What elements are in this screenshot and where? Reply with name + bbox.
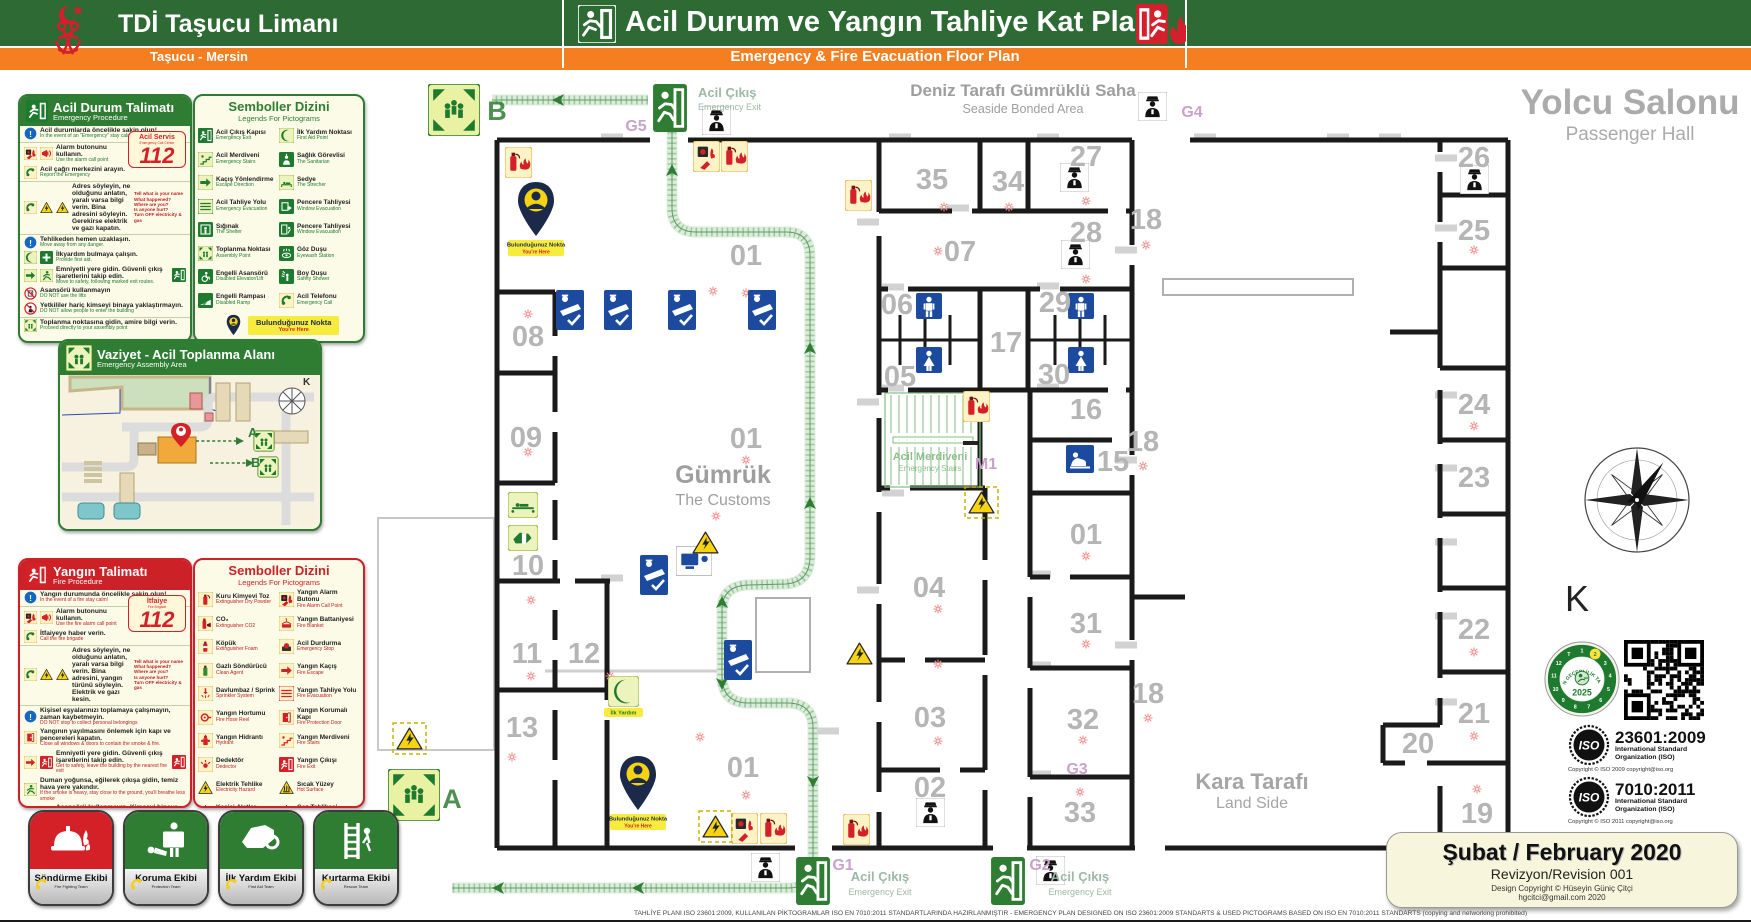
instruction-text: Asansörü kullanmayınDO NOT use the lifts [40, 287, 186, 300]
sticker-month: 1 [1581, 649, 1584, 655]
legend-columns: Acil Çıkış KapısıEmergency ExitAcil Merd… [195, 124, 363, 312]
legend-text: Elektrik TehlikeElectricity Hazard [216, 782, 279, 794]
legend-en: Disabled Ramp [216, 301, 279, 306]
detector-icon [1082, 275, 1091, 284]
detector-icon [1144, 714, 1153, 723]
legend-text: SedyeThe Strecher [297, 177, 360, 189]
desk-icon [668, 290, 696, 330]
alarmr-icon [279, 592, 294, 607]
room-number: 12 [568, 638, 600, 670]
instruction-text: Duman yoğunsa, eğilerek çıkışa gidin, te… [40, 777, 186, 802]
legend-text: Acil DurdurmaEmergency Stop [297, 641, 360, 653]
instruction-row: Kişisel eşyalarınızı toplamaya çalışmayı… [20, 706, 190, 728]
legend-text: Kesici AletlerCut Hazard [216, 805, 279, 808]
arrowr-icon [24, 756, 37, 769]
you-are-here-pin [518, 182, 554, 236]
legend-header: Semboller DiziniLegends For Pictograms [195, 96, 363, 124]
sticker-month: 9 [1562, 698, 1565, 704]
pin-icon [225, 314, 242, 336]
medic-icon [279, 152, 294, 167]
instruction-row: Adres söyleyin, ne olduğunu anlatın, yar… [20, 182, 190, 235]
legend-row: Yangın HidrantıHydrant [198, 729, 279, 753]
detector-icon [940, 203, 949, 212]
site-map: ABK [60, 375, 316, 525]
legend-text: Engelli RampasıDisabled Ramp [216, 294, 279, 306]
instruction-en: Proceed directly to your assembly point [40, 326, 186, 332]
legend-column: Acil Çıkış KapısıEmergency ExitAcil Merd… [198, 124, 279, 312]
area-label: Deniz Tarafı Gümrüklü Saha [910, 81, 1136, 100]
instruction-text: Emniyetli yere gidin. Güvenli çıkış işar… [56, 750, 169, 775]
panel-title: Yangın Talimatı [53, 565, 147, 578]
legend-row: İlk Yardım NoktasıFirst Aid Point [279, 124, 360, 148]
instruction-en: Use the alarm call point [56, 158, 130, 164]
legend-text: Engelli AsansörüDisabled Elevator/Lift [216, 271, 279, 283]
room-number: 35 [916, 164, 948, 196]
phone-icon [224, 877, 239, 892]
detector-icon [1005, 203, 1014, 212]
area-label: The Customs [675, 492, 770, 509]
legend-en: Dedector [216, 765, 279, 770]
legend-text: Toplanma NoktasıAssembly Point [216, 247, 279, 259]
instruction-en: Get to safety, leave the building by the… [56, 764, 169, 775]
area-label: Land Side [1216, 795, 1288, 812]
legend-en: Assembly Point [216, 254, 279, 259]
arrowg-icon [198, 175, 213, 190]
gate-label: G2 [1029, 857, 1050, 874]
ext-icon [760, 813, 787, 844]
legend-en: Sprinkler System [216, 694, 279, 699]
room-number: 34 [992, 166, 1024, 198]
area-label: Gümrük [675, 461, 771, 489]
design-copyright: Design Copyright © Hüseyin Güniç Çitçi [1387, 884, 1737, 893]
warn-icon [56, 668, 69, 681]
blanket-icon [279, 616, 294, 631]
room-number: 08 [512, 321, 544, 353]
svg-text:ISO: ISO [1579, 791, 1600, 805]
area-label: Kara Tarafı [1195, 769, 1308, 794]
legend-text: DedektörDedector [216, 758, 279, 770]
room-number: 01 [730, 423, 762, 455]
detector-icon [1082, 640, 1091, 649]
legend-en: Fire Escape [297, 671, 360, 676]
doorr-icon [24, 731, 37, 744]
legend-en: Window Evacuation [297, 230, 360, 235]
panel-title-wrap: Acil Durum TalimatıEmergency Procedure [53, 101, 174, 122]
detector-icon [1473, 785, 1482, 794]
hand-icon [238, 818, 284, 864]
window2-icon [279, 222, 294, 237]
instruction-text: Tehlikeden hemen uzaklaşın.Move away fro… [40, 236, 186, 249]
assembly-icon [198, 246, 213, 261]
desk-icon [640, 555, 668, 595]
tri-icon [847, 643, 872, 664]
wcwoman-icon [1068, 347, 1094, 373]
instruction-row: Duman yoğunsa, eğilerek çıkışa gidin, te… [20, 776, 190, 803]
legend-text: Yangın HortumuFire Hose Reel [216, 711, 279, 723]
standards-footnote: TAHLİYE PLANI ISO 23601:2009, KULLANILAN… [430, 910, 1731, 917]
shelter-icon [198, 222, 213, 237]
exitr-icon [40, 756, 53, 769]
instruction-text: Acil çağrı merkezini arayın.Report the E… [40, 166, 130, 179]
detector-icon [527, 672, 536, 681]
sticker-year: 2025 [1572, 688, 1592, 698]
iso-org: Organization (ISO) [1615, 754, 1706, 761]
team-rescue-team: Kurtarma EkibiRescue Team [313, 810, 399, 906]
instruction-en: Call the fire brigade [40, 637, 130, 643]
instruction-text: Yetkililer hariç kimseyi binaya yaklaştı… [40, 302, 186, 315]
instruction-text: Adres söyleyin, ne olduğunu anlatın, yar… [72, 647, 131, 703]
tri-icon [397, 728, 422, 749]
legend-text: Göz DuşuEyewash Station [297, 247, 360, 259]
room-number: 22 [1458, 614, 1490, 646]
legend-en: Fire Alarm Call Point [297, 604, 360, 609]
legend-en: Fire Evacuation [297, 694, 360, 699]
legend-text: Gaz TehlikesiGas Hazard [297, 805, 360, 808]
legend-row: Engelli RampasıDisabled Ramp [198, 289, 279, 313]
room-number: 10 [512, 550, 544, 582]
detector-icon [1082, 552, 1091, 561]
legend-text: Yangın MerdiveniFire Stairs [297, 735, 360, 747]
room-number: 25 [1458, 215, 1490, 247]
legend-en: Emergency Stop [297, 647, 360, 652]
gate-label: G3 [1066, 761, 1087, 778]
org-subtitle: Taşucu - Mersin [150, 49, 248, 64]
legend-row: Yangın HortumuFire Hose Reel [198, 706, 279, 730]
hydrant-icon [198, 733, 213, 748]
counter [1163, 279, 1353, 295]
wheel-icon [198, 269, 213, 284]
legend-tr: Gaz Tehlikesi [297, 805, 360, 808]
info-icon [24, 236, 37, 249]
room-number: 28 [1070, 217, 1102, 249]
alarmr-icon [24, 147, 37, 160]
instruction-row: Adres söyleyin, ne olduğunu anlatın, yar… [20, 646, 190, 706]
exitr-icon [279, 757, 294, 772]
aid-icon [40, 251, 53, 264]
legend-columns: Kuru Kimyevi TozExtinguisher Dry PowderC… [195, 588, 363, 808]
legend-row: Toplanma NoktasıAssembly Point [198, 242, 279, 266]
window-icon [279, 199, 294, 214]
desk-icon [748, 290, 776, 330]
officer-icon [751, 853, 780, 882]
instruction-en: Move away from any danger. [40, 243, 186, 249]
legend-text: CO₂Extinguisher CO2 [216, 617, 279, 629]
exterior-platform [378, 518, 494, 750]
room-number: 30 [1038, 359, 1070, 391]
detector-icon [1470, 422, 1479, 431]
map-north-letter: K [303, 377, 311, 388]
area-label: Acil Çıkış [1051, 869, 1110, 884]
legend-row: SığınakThe Shelter [198, 218, 279, 242]
badge-number: 112 [129, 145, 185, 166]
legend-row: Yangın MerdiveniFire Stairs [279, 729, 360, 753]
legend-text: SığınakThe Shelter [216, 224, 279, 236]
detector-icon [712, 512, 721, 521]
instruction-row: Yangının yayılmasını önlemek için kapı v… [20, 727, 190, 749]
panel-subtitle: Emergency Procedure [53, 114, 174, 122]
room-number: 27 [1070, 141, 1102, 173]
fire-exit-icon [1136, 4, 1186, 44]
fire-exit-icon [26, 564, 48, 586]
hand-icon [508, 525, 538, 551]
instruction-text: Adres söyleyin, ne olduğunu anlatın, yar… [72, 183, 131, 232]
panel-title: Acil Durum Talimatı [53, 101, 174, 114]
legend-en: Emergency Stairs [216, 160, 279, 165]
you-are-here-text-en: You're Here [522, 250, 550, 256]
instruction-en: Move to safety, following marked exit ro… [56, 280, 169, 286]
ext-icon [721, 141, 748, 172]
room-number: 29 [1039, 287, 1071, 319]
legend-tr: Kesici Aletler [216, 805, 279, 808]
helmet-icon [48, 818, 94, 864]
team-first-aid-team: İlk Yardım EkibiFirst Aid Team [218, 810, 304, 906]
svg-text:ISO: ISO [1579, 739, 1600, 753]
detector-icon [524, 310, 533, 319]
door-opening [857, 399, 879, 406]
team-label-strip: Kurtarma EkibiRescue Team [315, 869, 397, 906]
legend-row: Göz DuşuEyewash Station [279, 242, 360, 266]
legend-text: Sağlık GörevlisiThe Sanitarian [297, 153, 360, 165]
door-opening [1115, 642, 1137, 649]
doorr-icon [279, 710, 294, 725]
alarm-icon [731, 813, 758, 844]
north-letter: K [1565, 578, 1589, 620]
legend-text: Gazlı SöndürücüClean Agent [216, 664, 279, 676]
extclean-icon [198, 663, 213, 678]
map-marker-a: A [248, 425, 258, 440]
legend-text: Acil TelefonuEmergency Call [297, 294, 360, 306]
ext-icon [963, 391, 990, 422]
instruction-tr: Kişisel eşyalarınızı toplamaya çalışmayı… [40, 707, 186, 721]
detector-icon [934, 660, 943, 669]
legend-row: Pencere TahliyesiWindow Evacuation [279, 195, 360, 219]
hatchg-icon [198, 199, 213, 214]
legend-text: Yangın HidrantıHydrant [216, 735, 279, 747]
iso-copyright: Copyright © ISO 2011 copyright@iso.org [1568, 819, 1751, 825]
team-pictogram [125, 812, 207, 869]
sticker-month: 4 [1609, 674, 1612, 680]
room-number: 03 [914, 702, 946, 734]
assembly-icon [24, 319, 37, 332]
legend-row: KöpükExtinguisher Foam [198, 635, 279, 659]
legend-row: Davlumbaz / SprinkSprinkler System [198, 682, 279, 706]
legend-header: Semboller DiziniLegends For Pictograms [195, 560, 363, 588]
phone-icon [319, 877, 334, 892]
legend-row: Yangın BattaniyesiFire Blanket [279, 612, 360, 636]
crescent-icon [608, 676, 639, 707]
legend-panel-green: Semboller DiziniLegends For PictogramsAc… [193, 94, 365, 343]
detector-icon [934, 605, 943, 614]
instruction-en: If the smoke is heavy, stay close to the… [40, 791, 186, 802]
crescent-icon [279, 128, 294, 143]
emergency-number-badge: Acil ServisEmergency Call Center112 [128, 131, 186, 168]
room-number: 31 [1070, 608, 1102, 640]
legend-text: Boy DuşuSafety Shower [297, 271, 360, 283]
legend-text: Yangın KaçışFire Escape [297, 664, 360, 676]
legend-subtitle: Legends For Pictograms [195, 578, 363, 587]
door-opening [1435, 155, 1457, 162]
shower-icon [279, 269, 294, 284]
team-label-strip: Söndürme EkibiFire Fighting Team [30, 869, 112, 906]
instruction-text: İtfaiyeye haber verin.Call the fire brig… [40, 630, 130, 643]
room-number: 18 [1132, 678, 1164, 710]
legend-row: Sağlık GörevlisiThe Sanitarian [279, 148, 360, 172]
sticker-month: 6 [1599, 698, 1602, 704]
room-number: 06 [881, 289, 913, 321]
detector-icon [934, 247, 943, 256]
room-number: 18 [1127, 426, 1159, 458]
legend-en: Extinguisher CO2 [216, 624, 279, 629]
instruction-tr: Emniyetli yere gidin. Güvenli çıkış işar… [56, 750, 169, 764]
room-number: 11 [512, 638, 543, 670]
validity-sticker: 123456789101112TSON GEÇERLİLİK TARİH2025 [1543, 640, 1621, 718]
legend-row: Yangın KaçışFire Escape [279, 659, 360, 683]
you-are-here-en: You're Here [256, 327, 331, 333]
legend-en: Fire Hose Reel [216, 718, 279, 723]
area-label: Seaside Bonded Area [963, 102, 1084, 116]
qr-code [1624, 640, 1704, 720]
instruction-tr: Adres söyleyin, ne olduğunu anlatın, yar… [72, 183, 131, 232]
badge-number: 112 [129, 609, 185, 630]
legend-en: Disabled Elevator/Lift [216, 277, 279, 282]
room-number: 01 [730, 240, 762, 272]
team-label-strip: Koruma EkibiProtection Team [125, 869, 207, 906]
evacuation-plan-poster: ! İlk YardımBulunduğunuz NoktaYou're Her… [0, 0, 1751, 922]
legend-en: Window Evacuation [297, 207, 360, 212]
legend-tr: Yangın Alarm Butonu [297, 590, 360, 604]
legend-text: Yangın Tahliye YoluFire Evacuation [297, 688, 360, 700]
door-opening [1115, 247, 1137, 254]
org-title: TDİ Taşucu Limanı [118, 10, 338, 39]
legend-text: Kaçış YönlendirmeEscape Direction [216, 177, 279, 189]
detector-icon [1470, 732, 1479, 741]
legend-row: Gaz TehlikesiGas Hazard [279, 800, 360, 809]
room-number: 17 [990, 327, 1022, 359]
info-icon [24, 127, 37, 140]
runnerg-icon [40, 269, 53, 282]
legend-text: Pencere TahliyesiWindow Evacuation [297, 224, 360, 236]
ext-icon [845, 180, 872, 211]
room-number: 33 [1064, 797, 1096, 829]
room-number: 21 [1458, 698, 1490, 730]
revision-box: Şubat / February 2020 Revizyon/Revision … [1386, 832, 1738, 908]
legend-row: Boy DuşuSafety Shower [279, 265, 360, 289]
runnerg-icon [24, 783, 37, 796]
legend-row: Acil MerdiveniEmergency Stairs [198, 148, 279, 172]
wcman-icon [916, 293, 942, 319]
legend-text: Kuru Kimyevi TozExtinguisher Dry Powder [216, 594, 279, 606]
tri-icon [703, 816, 728, 837]
legend-en: Extinguisher Dry Powder [216, 600, 279, 605]
you-are-here-pin [620, 756, 656, 810]
assembly-map-subtitle: Emergency Assembly Area [97, 361, 275, 369]
legend-en: Safety Shower [297, 277, 360, 282]
phone-icon [129, 877, 144, 892]
legend-row: Acil Tahliye YoluEmergency Evacuation [198, 195, 279, 219]
wcman-icon [1068, 293, 1094, 319]
noenter-icon [24, 302, 37, 315]
exit-icon [653, 84, 687, 132]
instruction-row: Emniyetli yere gidin. Güvenli çıkış işar… [20, 749, 190, 776]
legend-row: Gazlı SöndürücüClean Agent [198, 659, 279, 683]
legend-en: Emergency Call [297, 301, 360, 306]
legend-en: First Aid Point [297, 136, 360, 141]
map-marker-b: B [251, 455, 260, 470]
room-number: 04 [913, 572, 945, 604]
legend-column: Yangın Alarm ButonuFire Alarm Call Point… [279, 588, 360, 808]
legend-row: Pencere TahliyesiWindow Evacuation [279, 218, 360, 242]
instruction-en: DO NOT allow people to enter the buildin… [40, 309, 186, 315]
legend-text: KöpükExtinguisher Foam [216, 641, 279, 653]
area-label: Emergency Exit [698, 102, 762, 112]
detector-icon [1470, 648, 1479, 657]
detector-icon [1142, 241, 1151, 250]
assembly-letter: A [442, 784, 462, 814]
cut-icon [198, 804, 213, 808]
detector-icon [508, 753, 517, 762]
wcwoman-icon [916, 347, 942, 373]
sticker-month: 8 [1574, 704, 1577, 710]
legend-row: Acil Çıkış KapısıEmergency Exit [198, 124, 279, 148]
instruction-text: Alarm butonunu kullanın.Use the fire ala… [56, 608, 130, 628]
stretcher-icon [279, 175, 294, 190]
instruction-tr: Duman yoğunsa, eğilerek çıkışa gidin, te… [40, 777, 186, 791]
phoneg-icon [279, 293, 294, 308]
legend-en: Hydrant [216, 741, 279, 746]
assembly-icon [428, 84, 480, 136]
ramp-icon [198, 293, 213, 308]
instruction-tr: Yangının yayılmasını önlemek için kapı v… [40, 728, 186, 742]
iso-org: Organization (ISO) [1615, 806, 1695, 813]
instruction-text: Emniyetli yere gidin. Güvenli çıkış işar… [56, 266, 169, 286]
legend-row: SedyeThe Strecher [279, 171, 360, 195]
you-are-here-row: Bulunduğunuz NoktaYou're Here [225, 314, 363, 336]
you-are-here-text: Bulunduğunuz Nokta [609, 817, 668, 823]
iso-badge-7010: ISO 7010:2011 International Standard Org… [1568, 776, 1751, 825]
stairsg-icon [198, 152, 213, 167]
legend-row: Yangın ÇıkışıFire Exit [279, 753, 360, 777]
room-number: 16 [1070, 394, 1102, 426]
area-label: Acil Çıkış [851, 869, 910, 884]
legend-row: Acil TelefonuEmergency Call [279, 289, 360, 313]
detect-icon [198, 757, 213, 772]
room-number: 19 [1461, 798, 1493, 830]
exit-icon [26, 100, 48, 122]
instruction-text: İlkyardım bulmaya çalışın.Provide first … [56, 251, 186, 264]
hose-icon [198, 710, 213, 725]
team-pictogram [30, 812, 112, 869]
port-logo [30, 2, 106, 68]
door-opening [882, 490, 904, 497]
warn-icon [40, 668, 53, 681]
info-icon [24, 591, 37, 604]
instruction-row: Asansörü kullanmayınDO NOT use the lifts [20, 286, 190, 301]
instruction-tr: Adres söyleyin, ne olduğunu anlatın, yar… [72, 647, 131, 703]
legend-en: Hot Surface [297, 788, 360, 793]
gate-label: G4 [1181, 104, 1202, 121]
legend-en: Emergency Exit [216, 136, 279, 141]
instruction-en: Provide first aid. [56, 258, 186, 264]
walls [497, 140, 1508, 848]
you-are-here-text-en: You're Here [624, 824, 652, 830]
area-label: Passenger Hall [1566, 124, 1695, 145]
instruction-note: Tell what is your name What happened? Wh… [134, 659, 186, 690]
legend-text: Yangın Korumalı KapıFire Protection Door [297, 708, 360, 727]
extco2-icon [198, 616, 213, 631]
badge-service: Acil Servis [129, 134, 185, 141]
instruction-tr: Alarm butonunu kullanın. [56, 144, 130, 158]
prayer-icon [1066, 445, 1094, 473]
